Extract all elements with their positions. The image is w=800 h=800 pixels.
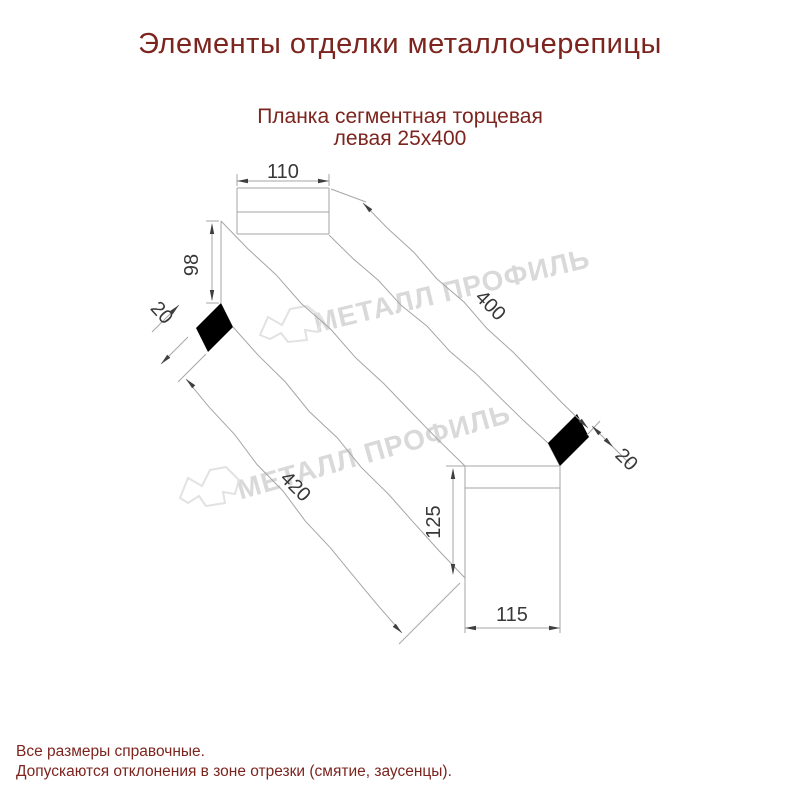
arrowhead bbox=[451, 564, 455, 575]
left-hem-flap bbox=[196, 303, 233, 352]
arrowhead bbox=[549, 626, 560, 630]
dim-400-label: 400 bbox=[471, 286, 510, 325]
strip-bottom-edge bbox=[233, 327, 465, 578]
dim-400-extension-far bbox=[331, 189, 366, 202]
dim-98-label: 98 bbox=[181, 254, 203, 276]
arrowhead bbox=[210, 290, 214, 301]
footer-note-2: Допускаются отклонения в зоне отрезки (с… bbox=[16, 762, 452, 782]
strip-fold-edge bbox=[221, 221, 465, 466]
footer-note-1: Все размеры справочные. bbox=[16, 742, 452, 762]
arrowhead bbox=[465, 626, 476, 630]
footer-notes: Все размеры справочные. Допускаются откл… bbox=[16, 742, 452, 782]
arrowhead bbox=[210, 223, 214, 234]
dim-110-label: 110 bbox=[267, 161, 299, 183]
dim-115-label: 115 bbox=[496, 604, 528, 626]
arrowhead bbox=[186, 379, 195, 388]
technical-drawing: 110 98 20 400 420 125 115 20 bbox=[0, 0, 800, 800]
arrowhead bbox=[451, 468, 455, 479]
dim-420-label: 420 bbox=[276, 467, 315, 506]
arrowhead bbox=[237, 179, 248, 183]
arrowhead bbox=[393, 624, 402, 633]
arrowhead bbox=[318, 179, 329, 183]
drawing-page: Элементы отделки металлочерепицы Планка … bbox=[0, 0, 800, 800]
metal-profil-logo-icon-lower bbox=[180, 467, 239, 506]
dim-400-line bbox=[363, 203, 588, 428]
dim-125-label: 125 bbox=[423, 505, 445, 538]
strip-top-right-edge bbox=[329, 235, 548, 443]
dim-420-extension-near bbox=[399, 583, 460, 644]
metal-profil-logo-icon-upper bbox=[260, 306, 322, 342]
dim-420-extension-far bbox=[178, 354, 206, 382]
dim-420-line bbox=[186, 379, 402, 633]
